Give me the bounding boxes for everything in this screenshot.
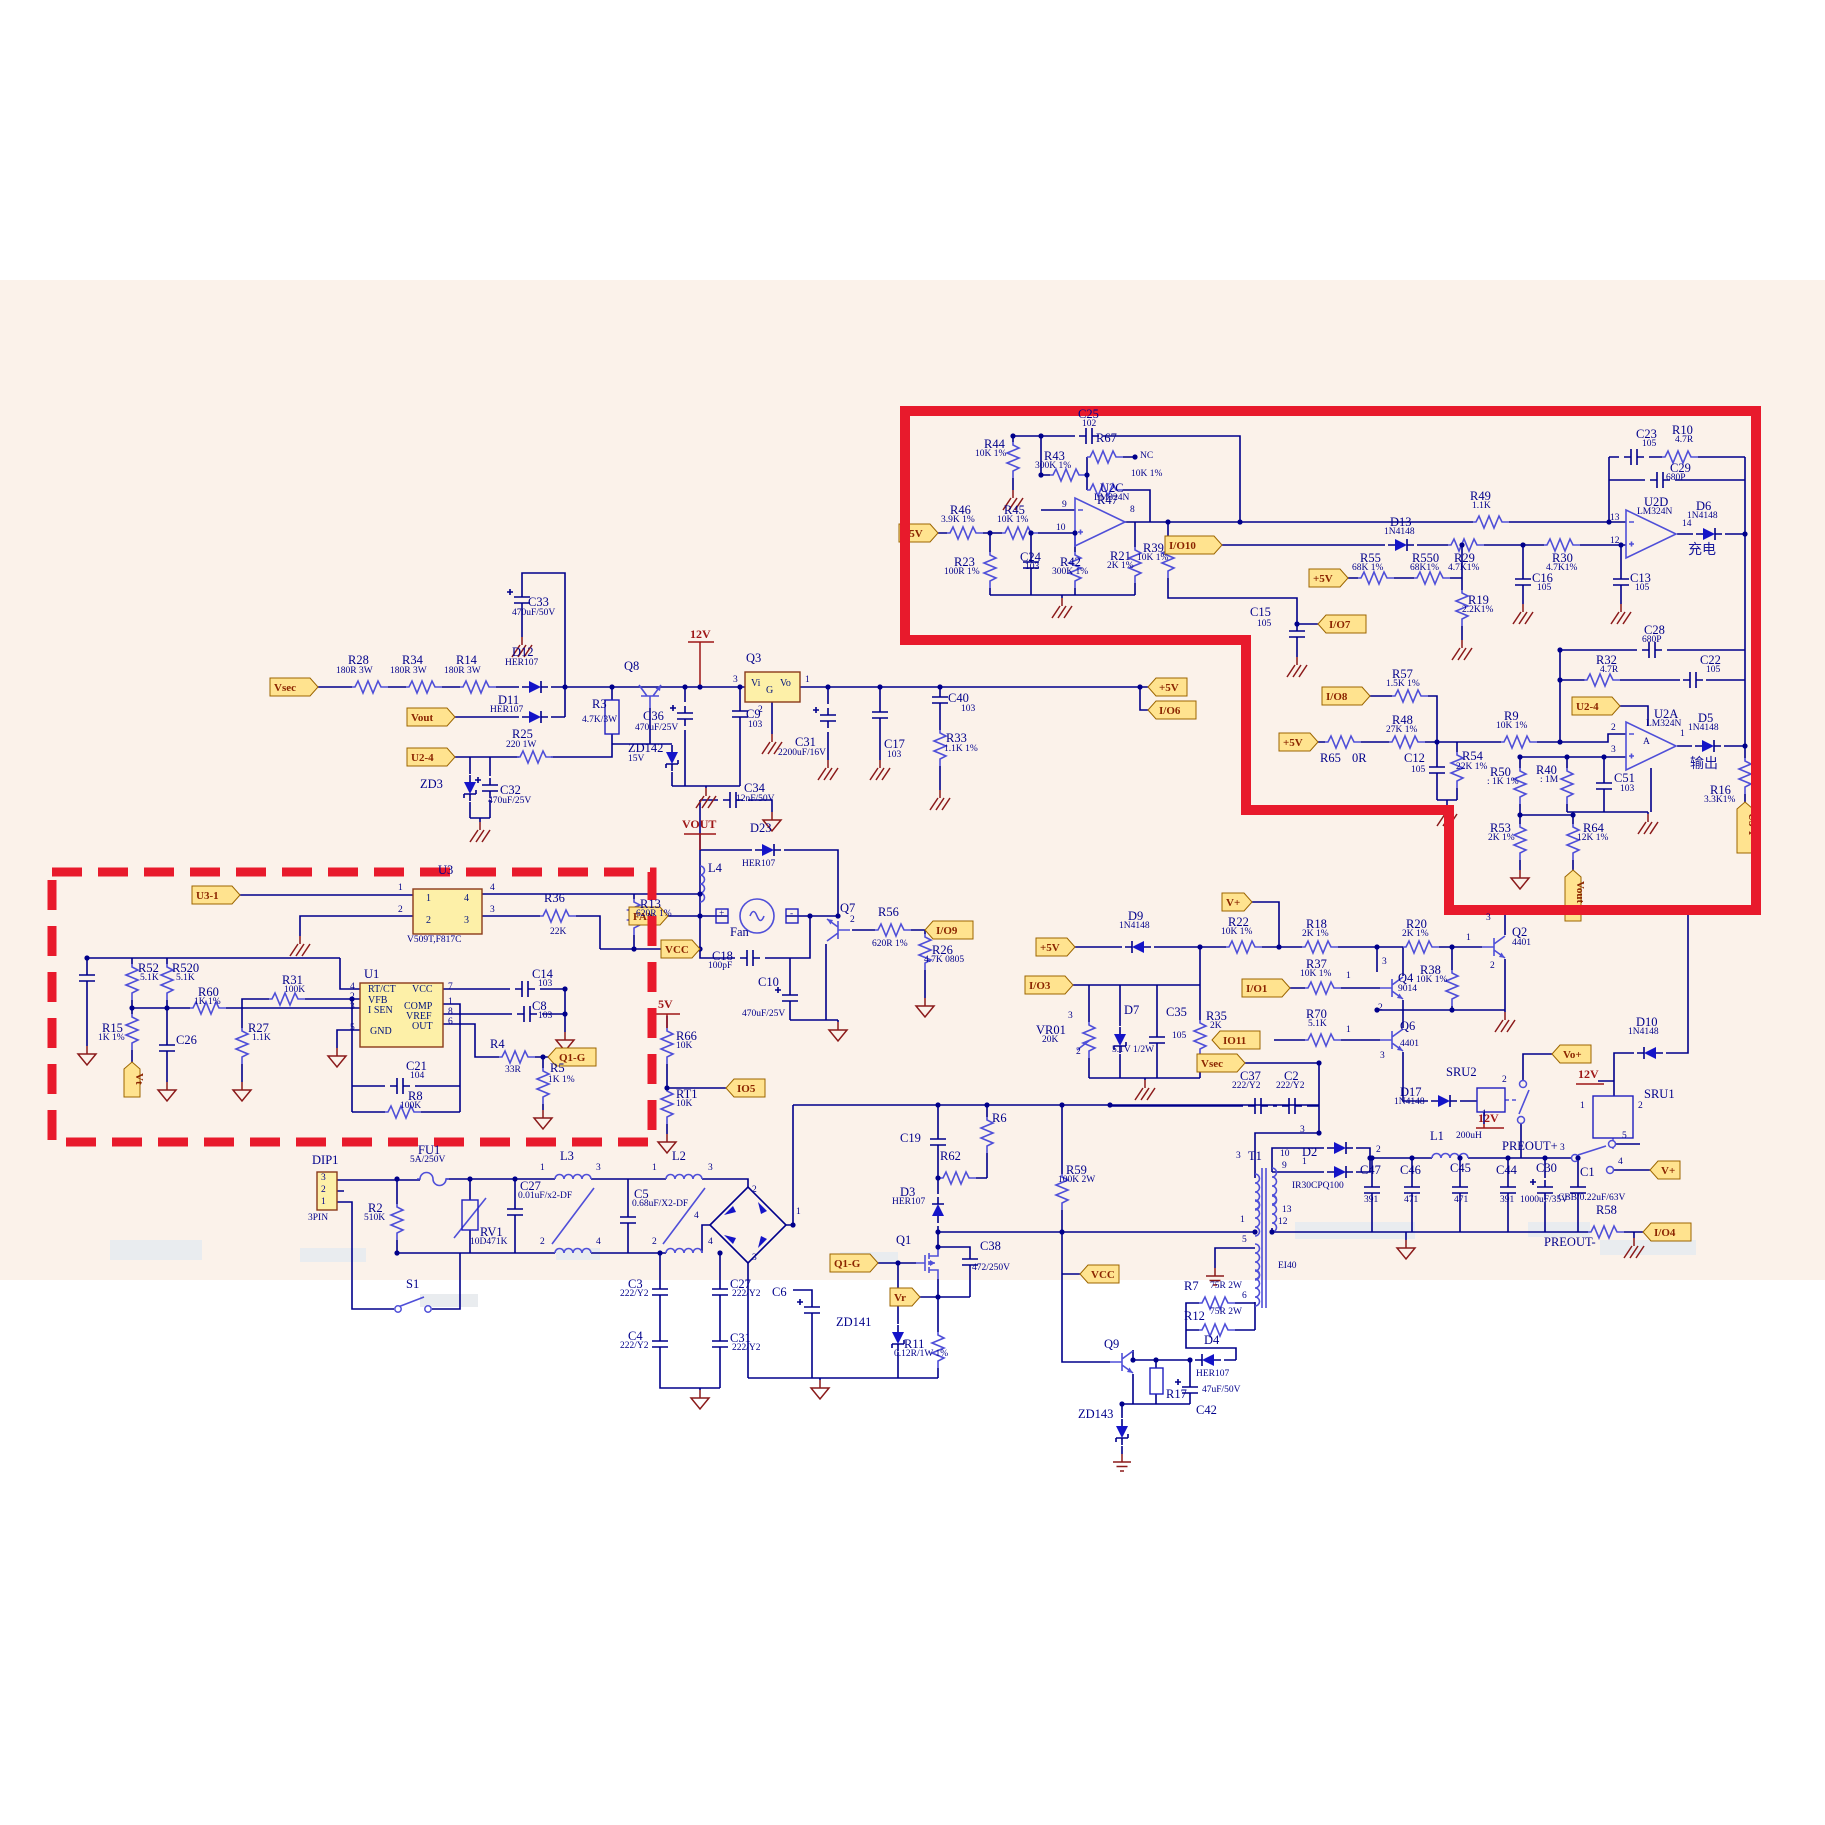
label-105: 105: [1642, 440, 1656, 450]
label-222-y2: 222/Y2: [620, 1290, 649, 1300]
label-3: 3: [1611, 746, 1616, 756]
label-472-250v: 472/250V: [972, 1264, 1010, 1274]
label-391: 391: [1364, 1196, 1378, 1206]
label-r36: R36: [544, 892, 565, 905]
label-4-7k-3w: 4.7K/3W: [582, 716, 617, 726]
label-3: 3: [1300, 1126, 1305, 1136]
label-c44: C44: [1496, 1164, 1517, 1177]
label-r17: R17: [1166, 1388, 1187, 1401]
label-1-1k-1: 1.1K 1%: [944, 745, 978, 755]
label-12: 12: [1610, 537, 1620, 547]
label-1: 1: [1466, 934, 1471, 944]
label-g: G: [766, 686, 773, 696]
label-d4: D4: [1204, 1334, 1219, 1347]
label-0r: 0R: [1352, 752, 1367, 765]
label-q1: Q1: [896, 1234, 911, 1247]
label-100k: 100K: [400, 1102, 421, 1112]
label-1-1k: 1.1K: [252, 1034, 271, 1044]
label-103: 103: [538, 980, 552, 990]
label-x: 输出: [1690, 758, 1718, 772]
label-i-sen: I SEN: [368, 1006, 393, 1016]
label-3: 3: [708, 1164, 713, 1174]
label-r58: R58: [1596, 1204, 1617, 1217]
label-1k-1: 1K 1%: [194, 998, 221, 1008]
label-10k-1: 10K 1%: [997, 516, 1028, 526]
label-vout: VOUT: [682, 818, 716, 830]
label-10: 10: [1280, 1150, 1290, 1160]
label-470uf-50v: 470uF/50V: [512, 609, 555, 619]
label-fan: Fan: [730, 926, 749, 939]
label-lm324n: LM324N: [1094, 494, 1129, 504]
label-c19: C19: [900, 1132, 921, 1145]
label-2: 2: [850, 916, 855, 926]
label-c51: C51: [1614, 772, 1635, 785]
label-4401: 4401: [1400, 1040, 1419, 1050]
label-3-9k-1: 3.9K 1%: [941, 516, 975, 526]
label-r62: R62: [940, 1150, 961, 1163]
label-2: 2: [1502, 1076, 1507, 1086]
label-1n4148: 1N4148: [1394, 1098, 1425, 1108]
label-3: 3: [464, 916, 469, 926]
label-4: 4: [596, 1238, 601, 1248]
label-0-01uf-x2-df: 0.01uF/x2-DF: [518, 1192, 572, 1202]
label-103: 103: [887, 751, 901, 761]
label-q8: Q8: [624, 660, 639, 673]
label-12: 12: [1278, 1218, 1288, 1228]
label-2: 2: [321, 1186, 326, 1196]
label-100k: 100K: [284, 986, 305, 996]
label-c17: C17: [884, 738, 905, 751]
label-9: 9: [1062, 501, 1067, 511]
label-vcc: VCC: [412, 985, 433, 995]
label-2: 2: [1076, 1048, 1081, 1058]
label-1k-1: 1K 1%: [98, 1034, 125, 1044]
label-r67: R67: [1096, 432, 1117, 445]
label-d12: D12: [512, 646, 534, 659]
label-10k: 10K: [676, 1042, 692, 1052]
label-10k-1: 10K 1%: [1300, 970, 1331, 980]
label-2: 2: [752, 1186, 757, 1196]
label-20k: 20K: [1042, 1036, 1058, 1046]
label-r34: R34: [402, 654, 423, 667]
label-2k-1: 2K 1%: [1402, 930, 1429, 940]
label-c45: C45: [1450, 1162, 1471, 1175]
label-q2: Q2: [1512, 926, 1527, 939]
label-102: 102: [1082, 420, 1096, 430]
label-c34: C34: [744, 782, 765, 795]
label-c32: C32: [500, 784, 521, 797]
label-105: 105: [1172, 1032, 1186, 1042]
label-100r-1: 100R 1%: [944, 568, 980, 578]
label-222-y2: 222/Y2: [732, 1344, 761, 1354]
label-x: 充电: [1688, 544, 1716, 558]
label-2k-1: 2K 1%: [1107, 562, 1134, 572]
label-12k-1: 12K 1%: [1577, 834, 1608, 844]
label-6: 6: [448, 1018, 453, 1028]
label-5: 5: [350, 1024, 355, 1034]
label-5-1v-1-2w: 5.1V 1/2W: [1112, 1046, 1154, 1056]
label-3: 3: [1380, 1052, 1385, 1062]
label-q7: Q7: [840, 902, 855, 915]
label-a: A: [1643, 738, 1650, 748]
label-c10: C10: [758, 976, 779, 989]
label-3: 3: [490, 906, 495, 916]
label-104: 104: [410, 1072, 424, 1082]
label-x: -: [790, 910, 793, 920]
label-10k-1: 10K 1%: [1131, 470, 1162, 480]
label-68k-1: 68K 1%: [1352, 564, 1383, 574]
label-1: 1: [1680, 730, 1685, 740]
label-c1: C1: [1580, 1166, 1595, 1179]
label-r12: R12: [1184, 1310, 1205, 1323]
label-x: +: [719, 910, 724, 920]
label-222-y2: 222/Y2: [732, 1290, 761, 1300]
label-vi: Vi: [751, 679, 760, 689]
label-200uh: 200uH: [1456, 1132, 1482, 1142]
label-103: 103: [1620, 785, 1634, 795]
label-105: 105: [1257, 620, 1271, 630]
label-680p: 680P: [1666, 474, 1686, 484]
label-1-1k: 1.1K: [1472, 502, 1491, 512]
label-222-y2: 222/Y2: [1232, 1082, 1261, 1092]
label-2: 2: [398, 906, 403, 916]
label-22k-1: 22K 1%: [1456, 763, 1487, 773]
label-c33: C33: [528, 596, 549, 609]
label-l4: L4: [708, 862, 722, 875]
label-c36: C36: [643, 710, 664, 723]
label-1: 1: [796, 1208, 801, 1218]
label-4: 4: [490, 884, 495, 894]
label-lm324n: LM324N: [1637, 508, 1672, 518]
label-68k1: 68K1%: [1410, 564, 1439, 574]
label-1: 1: [1240, 1216, 1245, 1226]
label-75r-2w: 75R 2W: [1210, 1282, 1242, 1292]
label-620r-1: 620R 1%: [872, 940, 908, 950]
label-22k: 22K: [550, 928, 566, 938]
label-10k-1: 10K 1%: [1496, 722, 1527, 732]
label-u3: U3: [438, 864, 453, 877]
label-12v: 12V: [690, 628, 711, 640]
label-391: 391: [1500, 1196, 1514, 1206]
label-r28: R28: [348, 654, 369, 667]
label-5-1k: 5.1K: [1308, 1020, 1327, 1030]
label-2-2k1: 2.2K1%: [1462, 606, 1493, 616]
label-3: 3: [1068, 1012, 1073, 1022]
label-2: 2: [540, 1238, 545, 1248]
label-105: 105: [1411, 766, 1425, 776]
label-2: 2: [1611, 724, 1616, 734]
label-12v: 12V: [1578, 1068, 1599, 1080]
label-5: 5: [1622, 1132, 1627, 1142]
label-3-3k1: 3.3K1%: [1704, 796, 1735, 806]
label-l3: L3: [560, 1150, 574, 1163]
label-c42: C42: [1196, 1404, 1217, 1417]
label-3: 3: [1486, 914, 1491, 924]
label-2k: 2K: [1210, 1022, 1222, 1032]
label-c26: C26: [176, 1034, 197, 1047]
label-4-7k1: 4.7K1%: [1448, 564, 1479, 574]
label-l2: L2: [672, 1150, 686, 1163]
label-103: 103: [538, 1012, 552, 1022]
label-2: 2: [1490, 962, 1495, 972]
label-620r-1: 620R 1%: [636, 910, 672, 920]
label-1n4148: 1N4148: [1384, 528, 1415, 538]
label-3: 3: [752, 1254, 757, 1264]
label-zd143: ZD143: [1078, 1408, 1113, 1421]
label-220-1w: 220 1W: [506, 741, 536, 751]
label-8: 8: [1130, 506, 1135, 516]
label-47uf-50v: 47uF/50V: [1202, 1386, 1241, 1396]
label-1: 1: [540, 1164, 545, 1174]
label-300k-1: 300K 1%: [1035, 462, 1071, 472]
label-680p: 680P: [1642, 636, 1662, 646]
label-1k-1: 1K 1%: [548, 1076, 575, 1086]
label-470uf-25v: 470uF/25V: [635, 724, 678, 734]
label-3: 3: [321, 1174, 326, 1184]
label-471: 471: [1454, 1196, 1468, 1206]
label-1: 1: [1346, 1026, 1351, 1036]
label-2k-1: 2K 1%: [1302, 930, 1329, 940]
label-3: 3: [1560, 1144, 1565, 1154]
label-1: 1: [652, 1164, 657, 1174]
label-105: 105: [1635, 584, 1649, 594]
label-4-7r: 4.7R: [1675, 436, 1693, 446]
label-10k-1: 10K 1%: [1416, 976, 1447, 986]
label-4: 4: [464, 894, 469, 904]
label-3: 3: [1382, 958, 1387, 968]
label-r25: R25: [512, 728, 533, 741]
label-1m: : 1M: [1540, 776, 1558, 786]
label-c15: C15: [1250, 606, 1271, 619]
label-1: 1: [1346, 972, 1351, 982]
label-180r-3w: 180R 3W: [444, 667, 481, 677]
label-her107: HER107: [742, 860, 775, 870]
label-3: 3: [1236, 1152, 1241, 1162]
label-470uf-25v: 470uF/25V: [488, 797, 531, 807]
label-471: 471: [1404, 1196, 1418, 1206]
label-4: 4: [708, 1238, 713, 1248]
label-27k-1: 27K 1%: [1386, 726, 1417, 736]
label-470uf-25v: 470uF/25V: [742, 1010, 785, 1020]
label-5v: 5V: [658, 998, 673, 1010]
label-r33: R33: [946, 732, 967, 745]
label-nc: NC: [1140, 452, 1153, 462]
label-0-12r-1w-1: 0.12R/1W 1%: [894, 1350, 948, 1360]
label-ir30cpq100: IR30CPQ100: [1292, 1182, 1344, 1192]
label-r56: R56: [878, 906, 899, 919]
label-2: 2: [652, 1238, 657, 1248]
label-5-1k: 5.1K: [176, 974, 195, 984]
label-her107: HER107: [490, 706, 523, 716]
label-103: 103: [748, 721, 762, 731]
label-zd141: ZD141: [836, 1316, 871, 1329]
label-rt-ct: RT/CT: [368, 985, 396, 995]
label-ei40: EI40: [1278, 1262, 1296, 1272]
label-r7: R7: [1184, 1280, 1199, 1293]
label-9: 9: [1282, 1162, 1287, 1172]
label-r5: R5: [550, 1062, 565, 1075]
labels-layer: R28180R 3WR34180R 3WR14180R 3WC33470uF/5…: [0, 0, 1825, 1825]
label-10k-1: 10K 1%: [975, 450, 1006, 460]
label-c12: C12: [1404, 752, 1425, 765]
label-out: OUT: [412, 1022, 433, 1032]
label-1: 1: [1302, 1158, 1307, 1168]
label-180r-3w: 180R 3W: [390, 667, 427, 677]
label-r6: R6: [992, 1112, 1007, 1125]
label-5: 5: [1242, 1236, 1247, 1246]
label-12v: 12V: [1478, 1112, 1499, 1124]
label-103: 103: [961, 705, 975, 715]
label-222-y2: 222/Y2: [1276, 1082, 1305, 1092]
label-c31: C31: [795, 736, 816, 749]
label-100pf: 100pF: [708, 962, 732, 972]
label-preout: PREOUT-: [1544, 1236, 1596, 1249]
label-c6: C6: [772, 1286, 787, 1299]
label-2: 2: [1638, 1102, 1643, 1112]
label-100k-2w: 100K 2W: [1058, 1176, 1095, 1186]
label-9014: 9014: [1398, 985, 1417, 995]
label-5a-250v: 5A/250V: [410, 1156, 445, 1166]
label-10k-1: 10K 1%: [1221, 928, 1252, 938]
label-5-1k: 5.1K: [140, 974, 159, 984]
label-1-5k-1: 1.5K 1%: [1386, 680, 1420, 690]
label-q4: Q4: [1398, 972, 1413, 985]
label-her107: HER107: [892, 1198, 925, 1208]
label-105: 105: [1537, 584, 1551, 594]
label-1n4148: 1N4148: [1119, 922, 1150, 932]
label-c40: C40: [948, 692, 969, 705]
label-1: 1: [321, 1198, 326, 1208]
label-c30: C30: [1536, 1162, 1557, 1175]
label-3: 3: [350, 1003, 355, 1013]
label-lm324n: LM324N: [1646, 720, 1681, 730]
label-1n4148: 1N4148: [1688, 724, 1719, 734]
label-12nf-50v: 12nF/50V: [736, 795, 775, 805]
label-103: 103: [1025, 563, 1039, 573]
label-q3: Q3: [746, 652, 761, 665]
label-2: 2: [1378, 1004, 1383, 1014]
label-1: 1: [398, 884, 403, 894]
label-d23: D23: [750, 822, 772, 835]
label-preout: PREOUT+: [1502, 1140, 1558, 1153]
label-0-68uf-x2-df: 0.68uF/X2-DF: [632, 1200, 688, 1210]
label-222-y2: 222/Y2: [620, 1342, 649, 1352]
label-10: 10: [1056, 524, 1066, 534]
label-r65: R65: [1320, 752, 1341, 765]
label-4: 4: [694, 1212, 699, 1222]
label-4401: 4401: [1512, 939, 1531, 949]
label-q9: Q9: [1104, 1338, 1119, 1351]
label-sru2: SRU2: [1446, 1066, 1477, 1079]
label-1: 1: [1580, 1102, 1585, 1112]
label-3: 3: [733, 676, 738, 686]
label-4-7r: 4.7R: [1600, 666, 1618, 676]
label-r54: R54: [1462, 750, 1483, 763]
label-2: 2: [758, 706, 763, 716]
label-c46: C46: [1400, 1164, 1421, 1177]
label-7: 7: [448, 983, 453, 993]
label-180r-3w: 180R 3W: [336, 667, 373, 677]
label-l1: L1: [1430, 1130, 1444, 1143]
label-300k-1: 300K 1%: [1052, 568, 1088, 578]
label-1: 1: [805, 676, 810, 686]
label-4-7k-0805: 4.7K 0805: [924, 956, 964, 966]
label-sru1: SRU1: [1644, 1088, 1675, 1101]
label-c47: C47: [1360, 1164, 1381, 1177]
label-her107: HER107: [1196, 1370, 1229, 1380]
label-dip1: DIP1: [312, 1154, 338, 1167]
label-q6: Q6: [1400, 1020, 1415, 1033]
label-3pin: 3PIN: [308, 1214, 328, 1224]
label-105: 105: [1706, 666, 1720, 676]
label-3: 3: [596, 1164, 601, 1174]
label-u1: U1: [364, 968, 379, 981]
label-510k: 510K: [364, 1214, 385, 1224]
label-v509t-f817c: V509T,F817C: [407, 936, 461, 946]
label-4: 4: [1618, 1158, 1623, 1168]
label-13: 13: [1282, 1206, 1292, 1216]
label-t1: T1: [1248, 1150, 1262, 1163]
label-r4: R4: [490, 1038, 505, 1051]
label-15v: 15V: [628, 755, 644, 765]
label-r3: R3: [592, 698, 607, 711]
label-c38: C38: [980, 1240, 1001, 1253]
label-2: 2: [1376, 1146, 1381, 1156]
label-d7: D7: [1124, 1004, 1139, 1017]
label-zd142: ZD142: [628, 742, 663, 755]
label-1n4148: 1N4148: [1628, 1028, 1659, 1038]
label-her107: HER107: [505, 659, 538, 669]
label-gnd: GND: [370, 1027, 392, 1037]
label-2k-1: 2K 1%: [1488, 834, 1515, 844]
label-13: 13: [1610, 514, 1620, 524]
label-s1: S1: [406, 1278, 419, 1291]
label-2200uf-16v: 2200uF/16V: [778, 749, 826, 759]
label-10d471k: 10D471K: [470, 1238, 507, 1248]
label-2: 2: [426, 916, 431, 926]
label-6: 6: [1242, 1292, 1247, 1302]
label-r14: R14: [456, 654, 477, 667]
label-10k-1: 10K 1%: [1137, 554, 1168, 564]
label-zd3: ZD3: [420, 778, 443, 791]
label-1: 1: [426, 894, 431, 904]
label-vo: Vo: [780, 679, 791, 689]
label-75r-2w: 75R 2W: [1210, 1308, 1242, 1318]
schematic-canvas: VsecVoutU2-4+5VI/O6+5VI/O10+5VI/O7I/O8+5…: [0, 0, 1825, 1825]
label-10k: 10K: [676, 1100, 692, 1110]
label-1k-1: : 1K 1%: [1487, 778, 1519, 788]
label-33r: 33R: [505, 1066, 521, 1076]
label-c35: C35: [1166, 1006, 1187, 1019]
label-1n4148: 1N4148: [1687, 512, 1718, 522]
